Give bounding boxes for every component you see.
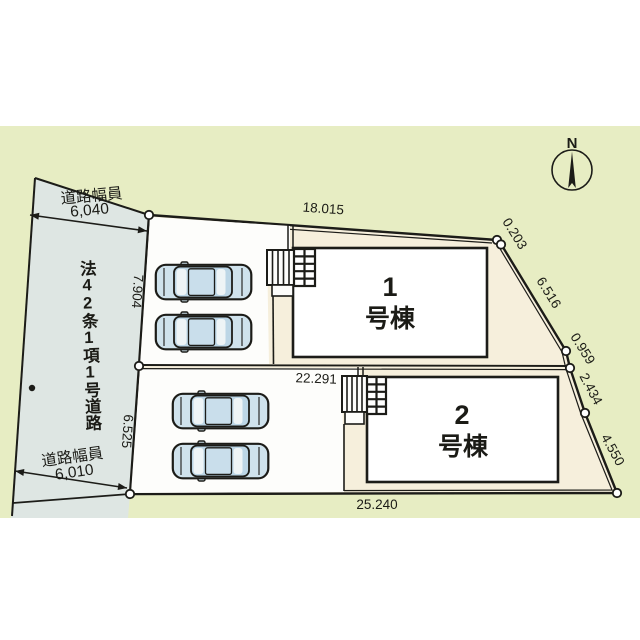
building-1-outline bbox=[293, 248, 487, 357]
lot-divider-line bbox=[139, 365, 570, 366]
compass-north-label: N bbox=[567, 135, 578, 152]
car-icon bbox=[173, 441, 268, 481]
road-point-dot bbox=[29, 385, 35, 391]
car-icon bbox=[156, 312, 252, 352]
car-icon bbox=[173, 391, 268, 431]
dim-middle-divider: 22.291 bbox=[295, 370, 337, 386]
dim-bottom-edge: 25.240 bbox=[356, 497, 397, 512]
dim-left-upper: 7.904 bbox=[129, 274, 146, 309]
road-width-value-top: 6,040 bbox=[70, 200, 111, 220]
dim-left-lower: 6.525 bbox=[119, 414, 136, 449]
building-2-suffix: 号棟 bbox=[438, 433, 489, 461]
dim-top-edge: 18.015 bbox=[302, 200, 344, 218]
building-1-number: 1 bbox=[382, 272, 397, 302]
car-icon bbox=[156, 262, 252, 302]
building-1-suffix: 号棟 bbox=[365, 305, 416, 333]
site-plan-stage: N 18.015 0.203 6.516 0.959 2.434 4.550 7… bbox=[0, 0, 640, 640]
building-2-number: 2 bbox=[454, 400, 469, 430]
